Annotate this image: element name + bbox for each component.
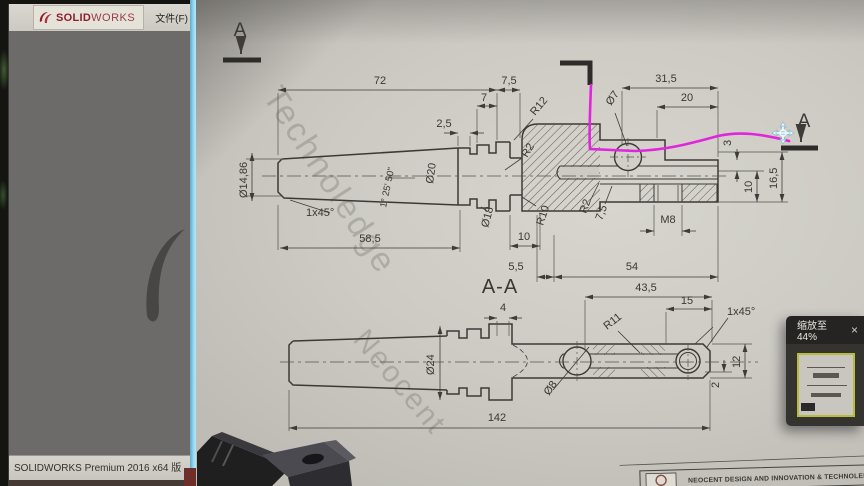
dim-72: 72 — [374, 75, 386, 87]
dim-dia14-86: Ø14,86 — [238, 162, 250, 198]
part-photo — [197, 432, 356, 486]
dim-10-bottom: 10 — [518, 231, 530, 243]
drawing-photo[interactable]: Technoledge Neocent — [196, 0, 864, 486]
dim-chamfer-bottom: 1x45° — [727, 306, 755, 318]
zoom-level-label: 缩放至44% — [797, 317, 847, 343]
solidworks-logo-icon — [38, 11, 53, 25]
dim-dia18: Ø18 — [479, 206, 496, 229]
window-bottom-border — [9, 480, 197, 486]
title-block: NEOCENT DESIGN AND INNOVATION & TECHNOLE… — [620, 455, 864, 486]
dim-54: 54 — [626, 261, 638, 273]
dim-chamfer-top: 1x45° — [306, 207, 334, 219]
brand-text-bold: SOLID — [56, 12, 91, 24]
dim-20: 20 — [681, 92, 693, 104]
dim-dia8: Ø8 — [542, 379, 560, 398]
dim-43-5: 43,5 — [635, 282, 656, 294]
brand-text-light: WORKS — [91, 12, 135, 24]
close-icon[interactable]: × — [847, 323, 858, 337]
dim-15: 15 — [681, 295, 693, 307]
dim-58-5: 58,5 — [359, 233, 380, 245]
dim-2-5: 2,5 — [436, 118, 451, 130]
dim-12: 12 — [731, 356, 743, 368]
zoom-overlay-body — [786, 344, 864, 426]
dim-dia24: Ø24 — [425, 354, 437, 375]
thumbnail-preview[interactable] — [797, 353, 855, 417]
dim-2: 2 — [710, 382, 722, 388]
zoom-overlay-panel: 缩放至44% × — [786, 316, 864, 426]
engineering-drawing: Technoledge Neocent — [196, 0, 864, 486]
solidworks-logo: SOLIDWORKS — [33, 5, 144, 30]
dim-dia20: Ø20 — [424, 162, 439, 184]
title-block-company: NEOCENT DESIGN AND INNOVATION & TECHNOLE… — [688, 472, 864, 484]
client-area[interactable] — [9, 31, 197, 455]
dim-m8: M8 — [660, 214, 675, 226]
dim-5-5: 5,5 — [508, 261, 523, 273]
screen: SOLIDWORKS 文件(F) 视图(V SOLIDWORKS Premium… — [0, 0, 864, 486]
dim-dia7: Ø7 — [604, 89, 622, 108]
watermark-neocent: Neocent — [347, 323, 453, 441]
status-bar: SOLIDWORKS Premium 2016 x64 版 — [9, 455, 197, 480]
dim-r12: R12 — [528, 95, 550, 118]
background-swoosh — [141, 221, 197, 331]
menu-file[interactable]: 文件(F) — [150, 10, 193, 25]
dim-31-5: 31,5 — [655, 73, 676, 85]
view-title-aa: A-A — [482, 276, 518, 298]
section-label-left: A — [234, 20, 247, 41]
dim-r11: R11 — [601, 311, 624, 332]
dim-7-5-top: 7,5 — [501, 75, 516, 87]
dim-142: 142 — [488, 412, 506, 424]
dim-16-5: 16,5 — [768, 168, 780, 189]
dim-3: 3 — [722, 140, 734, 146]
zoom-overlay-header: 缩放至44% × — [786, 316, 864, 344]
section-label-right: A — [798, 111, 811, 132]
titlebar[interactable]: SOLIDWORKS 文件(F) 视图(V — [9, 4, 197, 32]
bottom-view-dimension-labels: 4 43,5 15 1x45° R11 Ø24 Ø8 12 2 142 — [425, 282, 755, 424]
solidworks-window: SOLIDWORKS 文件(F) 视图(V SOLIDWORKS Premium… — [8, 4, 197, 486]
top-view-section — [522, 124, 718, 211]
section-corner-mark — [560, 63, 590, 85]
dim-10-right: 10 — [743, 181, 755, 193]
dim-7: 7 — [481, 92, 487, 104]
dim-4: 4 — [500, 302, 506, 314]
bottom-view-section — [513, 341, 700, 382]
